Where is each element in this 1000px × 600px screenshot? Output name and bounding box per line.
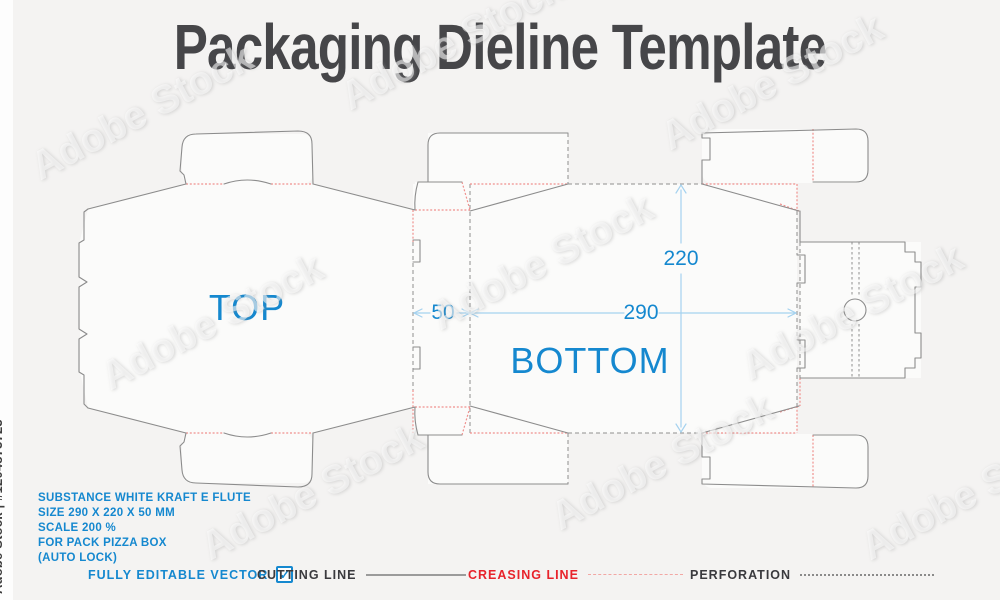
perforation-label: PERFORATION: [690, 568, 791, 582]
editable-vector-label: FULLY EDITABLE VECTOR: [88, 568, 268, 582]
spec-substance: SUBSTANCE WHITE KRAFT E FLUTE: [38, 491, 251, 506]
legend-perforation: PERFORATION: [690, 566, 934, 583]
bottom-panel-label: BOTTOM: [510, 340, 669, 381]
dim-depth-label: 50: [431, 301, 454, 324]
spec-use: FOR PACK PIZZA BOX: [38, 536, 251, 551]
creasing-line-sample: [588, 574, 683, 575]
perforation-line-sample: [800, 574, 934, 576]
dim-width-label: 290: [623, 301, 658, 324]
spec-scale: SCALE 200 %: [38, 521, 251, 536]
creasing-line-label: CREASING LINE: [468, 568, 579, 582]
panel-fills: [80, 129, 921, 488]
dim-height-label: 220: [663, 247, 698, 270]
spec-block: SUBSTANCE WHITE KRAFT E FLUTE SIZE 290 X…: [38, 491, 251, 566]
stock-image-canvas: Packaging Dieline Template: [0, 0, 1000, 600]
top-panel-label: TOP: [209, 287, 285, 328]
adobe-stock-id-watermark: Adobe Stock | #1204873723: [0, 419, 5, 594]
legend-cutting-line: CUTTING LINE: [257, 566, 466, 583]
legend-creasing-line: CREASING LINE: [468, 566, 683, 583]
cutting-line-label: CUTTING LINE: [257, 568, 357, 582]
cutting-line-sample: [366, 574, 466, 576]
spec-lock: (AUTO LOCK): [38, 551, 251, 566]
spec-size: SIZE 290 X 220 X 50 MM: [38, 506, 251, 521]
